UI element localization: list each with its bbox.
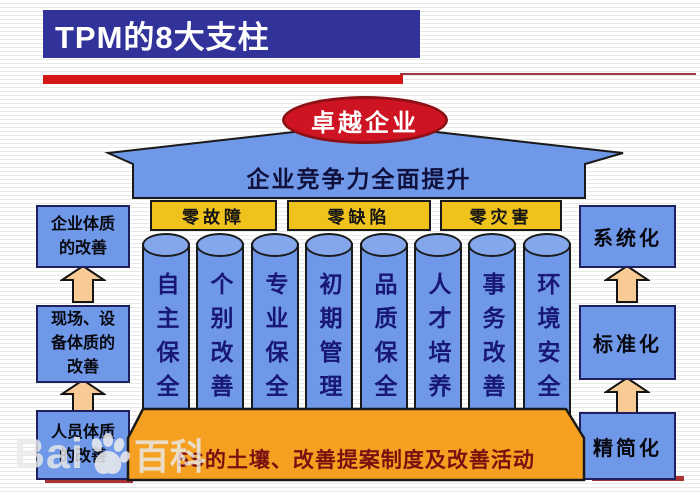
up-arrow-icon [604, 376, 650, 416]
box-line: 现场、设 [51, 308, 115, 332]
pillar-8: 环境安全 [523, 243, 571, 418]
box-line: 的改善 [59, 445, 107, 469]
banner-zero-disaster: 零灾害 [440, 200, 562, 231]
pillar-label: 自主保全 [149, 272, 183, 408]
up-arrow-icon [60, 264, 106, 304]
banner-zero-failure: 零故障 [150, 200, 277, 231]
box-line: 人员体质 [51, 421, 115, 445]
left-box-site-equipment-constitution: 现场、设 备体质的 改善 [36, 305, 130, 383]
box-line: 企业体质 [51, 213, 115, 237]
pillar-label: 初期管理 [312, 272, 346, 408]
pillar-cap [414, 233, 462, 257]
up-arrow-icon [604, 264, 650, 304]
pillar-label: 事务改善 [475, 272, 509, 408]
pillar-label: 人才培养 [421, 272, 455, 408]
right-box-simplification: 精简化 [579, 412, 676, 480]
foundation-base-label: 5S的土壤、改善提案制度及改善活动 [130, 444, 582, 474]
roof-label: 企业竞争力全面提升 [133, 160, 585, 194]
page-title: TPM的8大支柱 [43, 10, 420, 58]
pillar-cap [305, 233, 353, 257]
pillar-cap [142, 233, 190, 257]
pillar-label: 品质保全 [367, 272, 401, 408]
pillar-3: 专业保全 [251, 243, 299, 418]
pillar-cap [468, 233, 516, 257]
pillar-5: 品质保全 [360, 243, 408, 418]
pillar-label: 个别改善 [203, 272, 237, 408]
pillar-cap [196, 233, 244, 257]
right-box-systematization: 系统化 [579, 205, 676, 268]
left-box-enterprise-constitution: 企业体质 的改善 [36, 205, 130, 268]
pillar-1: 自主保全 [142, 243, 190, 418]
pillar-6: 人才培养 [414, 243, 462, 418]
right-box-standardization: 标准化 [579, 305, 676, 380]
tpm-pillars-slide: TPM的8大支柱 企业竞争力全面提升 卓越企业 零故障 零缺陷 零灾害 自主保全… [0, 0, 700, 492]
pillar-cap [251, 233, 299, 257]
box-line: 改善 [67, 356, 99, 380]
title-rule-line [400, 73, 696, 75]
box-line: 的改善 [59, 237, 107, 261]
apex-ellipse: 卓越企业 [282, 96, 448, 144]
title-underline-bar [43, 75, 403, 84]
pillar-cap [523, 233, 571, 257]
banner-zero-defect: 零缺陷 [287, 200, 431, 231]
pillar-2: 个别改善 [196, 243, 244, 418]
pillar-7: 事务改善 [468, 243, 516, 418]
pillar-cap [360, 233, 408, 257]
left-box-personnel-constitution: 人员体质 的改善 [36, 410, 130, 480]
pillar-4: 初期管理 [305, 243, 353, 418]
pillar-label: 专业保全 [258, 272, 292, 408]
box-line: 备体质的 [51, 332, 115, 356]
pillar-label: 环境安全 [530, 272, 564, 408]
